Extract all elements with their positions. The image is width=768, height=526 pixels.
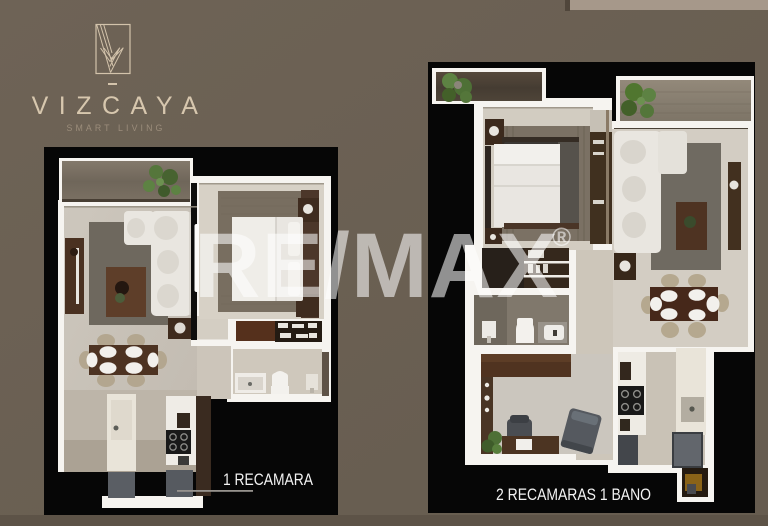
svg-text:®: ®: [552, 222, 571, 252]
svg-text:VIZCAYA: VIZCAYA: [32, 92, 209, 120]
svg-text:1 RECAMARA: 1 RECAMARA: [223, 471, 313, 489]
svg-text:SMART LIVING: SMART LIVING: [67, 123, 166, 133]
svg-text:2 RECAMARAS 1 BANO: 2 RECAMARAS 1 BANO: [496, 486, 651, 504]
svg-text:RE/MAX: RE/MAX: [194, 215, 559, 317]
